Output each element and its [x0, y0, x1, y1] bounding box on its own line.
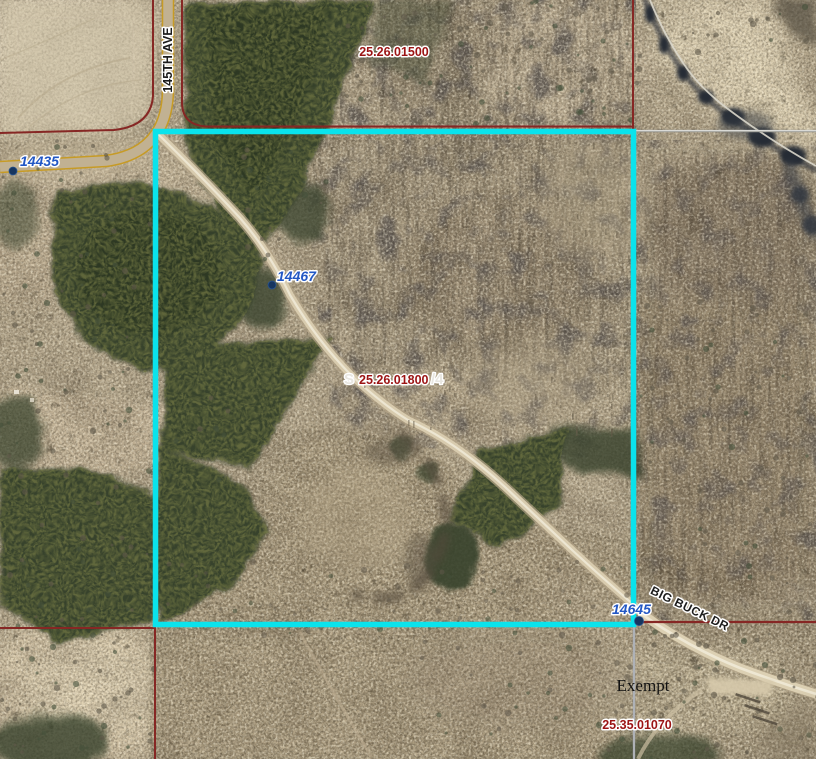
svg-text:14645: 14645: [612, 601, 651, 617]
svg-text:25.35.01070: 25.35.01070: [602, 718, 672, 732]
svg-text:/4: /4: [431, 371, 444, 388]
svg-text:145TH AVE: 145TH AVE: [161, 27, 175, 92]
svg-text:14467: 14467: [277, 268, 317, 284]
svg-text:25.26.01800: 25.26.01800: [359, 373, 429, 387]
svg-text:S: S: [344, 371, 354, 388]
svg-text:14435: 14435: [20, 153, 59, 169]
svg-text:Exempt: Exempt: [617, 676, 670, 695]
svg-text:25.26.01500: 25.26.01500: [359, 45, 429, 59]
